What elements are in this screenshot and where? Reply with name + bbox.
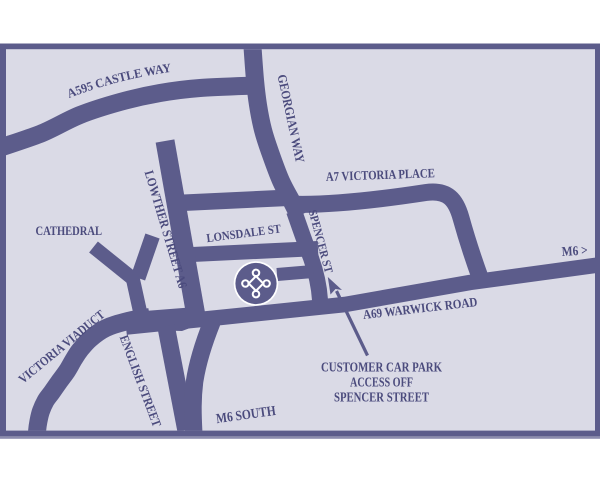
svg-text:SPENCER STREET: SPENCER STREET xyxy=(334,390,429,405)
svg-text:ACCESS OFF: ACCESS OFF xyxy=(350,375,413,390)
svg-text:M6 >: M6 > xyxy=(561,242,588,259)
svg-text:CATHEDRAL: CATHEDRAL xyxy=(36,223,103,238)
svg-text:CUSTOMER CAR PARK: CUSTOMER CAR PARK xyxy=(321,360,442,375)
